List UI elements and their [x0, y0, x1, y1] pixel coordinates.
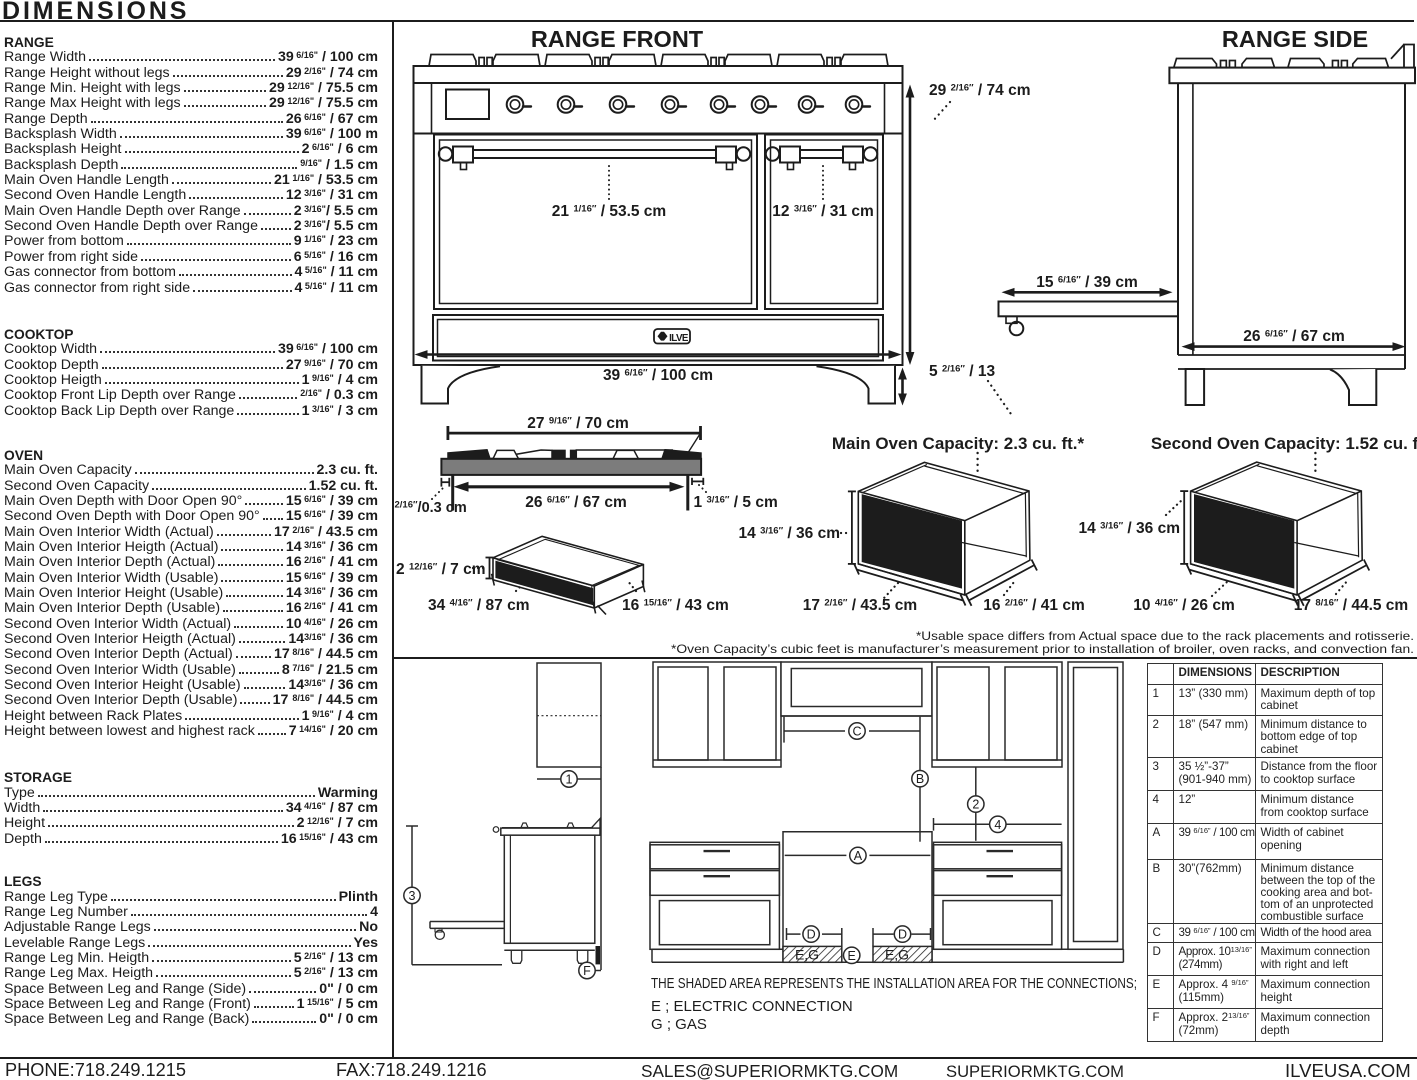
svg-text:B: B — [916, 772, 924, 786]
svg-text:14 3/16″ / 36 cm: 14 3/16″ / 36 cm — [1079, 520, 1180, 537]
svg-text:14 3/16″ / 36 cm: 14 3/16″ / 36 cm — [739, 525, 840, 542]
svg-text:1 3/16″ / 5 cm: 1 3/16″ / 5 cm — [694, 494, 778, 511]
svg-text:Main Oven Capacity: 2.3 cu. ft: Main Oven Capacity: 2.3 cu. ft.* — [832, 434, 1085, 453]
svg-text:F: F — [583, 964, 591, 978]
svg-text:*Usable space differs from Act: *Usable space differs from Actual space … — [916, 630, 1414, 643]
svg-text:5 2/16″ / 13: 5 2/16″ / 13 — [929, 363, 996, 380]
svg-text:E,G: E,G — [795, 947, 819, 963]
svg-text:39 6/16″ / 100 cm: 39 6/16″ / 100 cm — [603, 367, 713, 384]
svg-text:THE SHADED AREA REPRESENTS THE: THE SHADED AREA REPRESENTS THE INSTALLAT… — [651, 976, 1137, 992]
svg-text:26 6/16″ / 67 cm: 26 6/16″ / 67 cm — [525, 494, 626, 511]
svg-text:1: 1 — [566, 773, 573, 787]
svg-text:17 2/16″ / 43.5 cm: 17 2/16″ / 43.5 cm — [803, 597, 917, 614]
svg-text:3: 3 — [409, 889, 416, 903]
svg-text:17 8/16″ / 44.5 cm: 17 8/16″ / 44.5 cm — [1294, 597, 1408, 614]
svg-text:26 6/16″ / 67 cm: 26 6/16″ / 67 cm — [1243, 328, 1344, 345]
svg-text:RANGE FRONT: RANGE FRONT — [531, 26, 704, 52]
svg-text:2 12/16″ / 7 cm: 2 12/16″ / 7 cm — [396, 561, 486, 578]
svg-text:*Oven Capacity’s cubic feet is: *Oven Capacity’s cubic feet is manufactu… — [671, 643, 1414, 656]
svg-text:E,G: E,G — [885, 947, 909, 963]
svg-text:D: D — [807, 928, 816, 942]
svg-text:12 3/16″ / 31 cm: 12 3/16″ / 31 cm — [772, 203, 873, 220]
svg-text:E ; ELECTRIC CONNECTION: E ; ELECTRIC CONNECTION — [651, 998, 853, 1015]
svg-text:27 9/16″ / 70 cm: 27 9/16″ / 70 cm — [527, 415, 628, 432]
svg-text:16 15/16″ / 43 cm: 16 15/16″ / 43 cm — [622, 597, 729, 614]
svg-text:10 4/16″ / 26 cm: 10 4/16″ / 26 cm — [1133, 597, 1234, 614]
svg-text:ILVE: ILVE — [669, 333, 689, 344]
svg-text:RANGE SIDE: RANGE SIDE — [1222, 26, 1368, 52]
svg-text:34 4/16″ / 87 cm: 34 4/16″ / 87 cm — [428, 597, 529, 614]
svg-text:2/16″/0.3 cm: 2/16″/0.3 cm — [395, 500, 467, 517]
svg-text:29 2/16″ / 74 cm: 29 2/16″ / 74 cm — [929, 82, 1030, 99]
svg-text:2: 2 — [972, 798, 979, 812]
svg-text:E: E — [848, 949, 856, 963]
svg-text:Second Oven Capacity: 1.52 cu.: Second Oven Capacity: 1.52 cu. ft.* — [1151, 434, 1417, 453]
svg-text:4: 4 — [994, 818, 1001, 832]
svg-text:21 1/16″ / 53.5 cm: 21 1/16″ / 53.5 cm — [552, 203, 666, 220]
svg-text:G ; GAS: G ; GAS — [651, 1016, 707, 1033]
svg-text:16 2/16″ / 41 cm: 16 2/16″ / 41 cm — [983, 597, 1084, 614]
svg-text:D: D — [898, 928, 907, 942]
svg-text:A: A — [854, 849, 863, 863]
svg-text:15 6/16″ / 39 cm: 15 6/16″ / 39 cm — [1036, 274, 1137, 291]
svg-text:C: C — [852, 725, 861, 739]
